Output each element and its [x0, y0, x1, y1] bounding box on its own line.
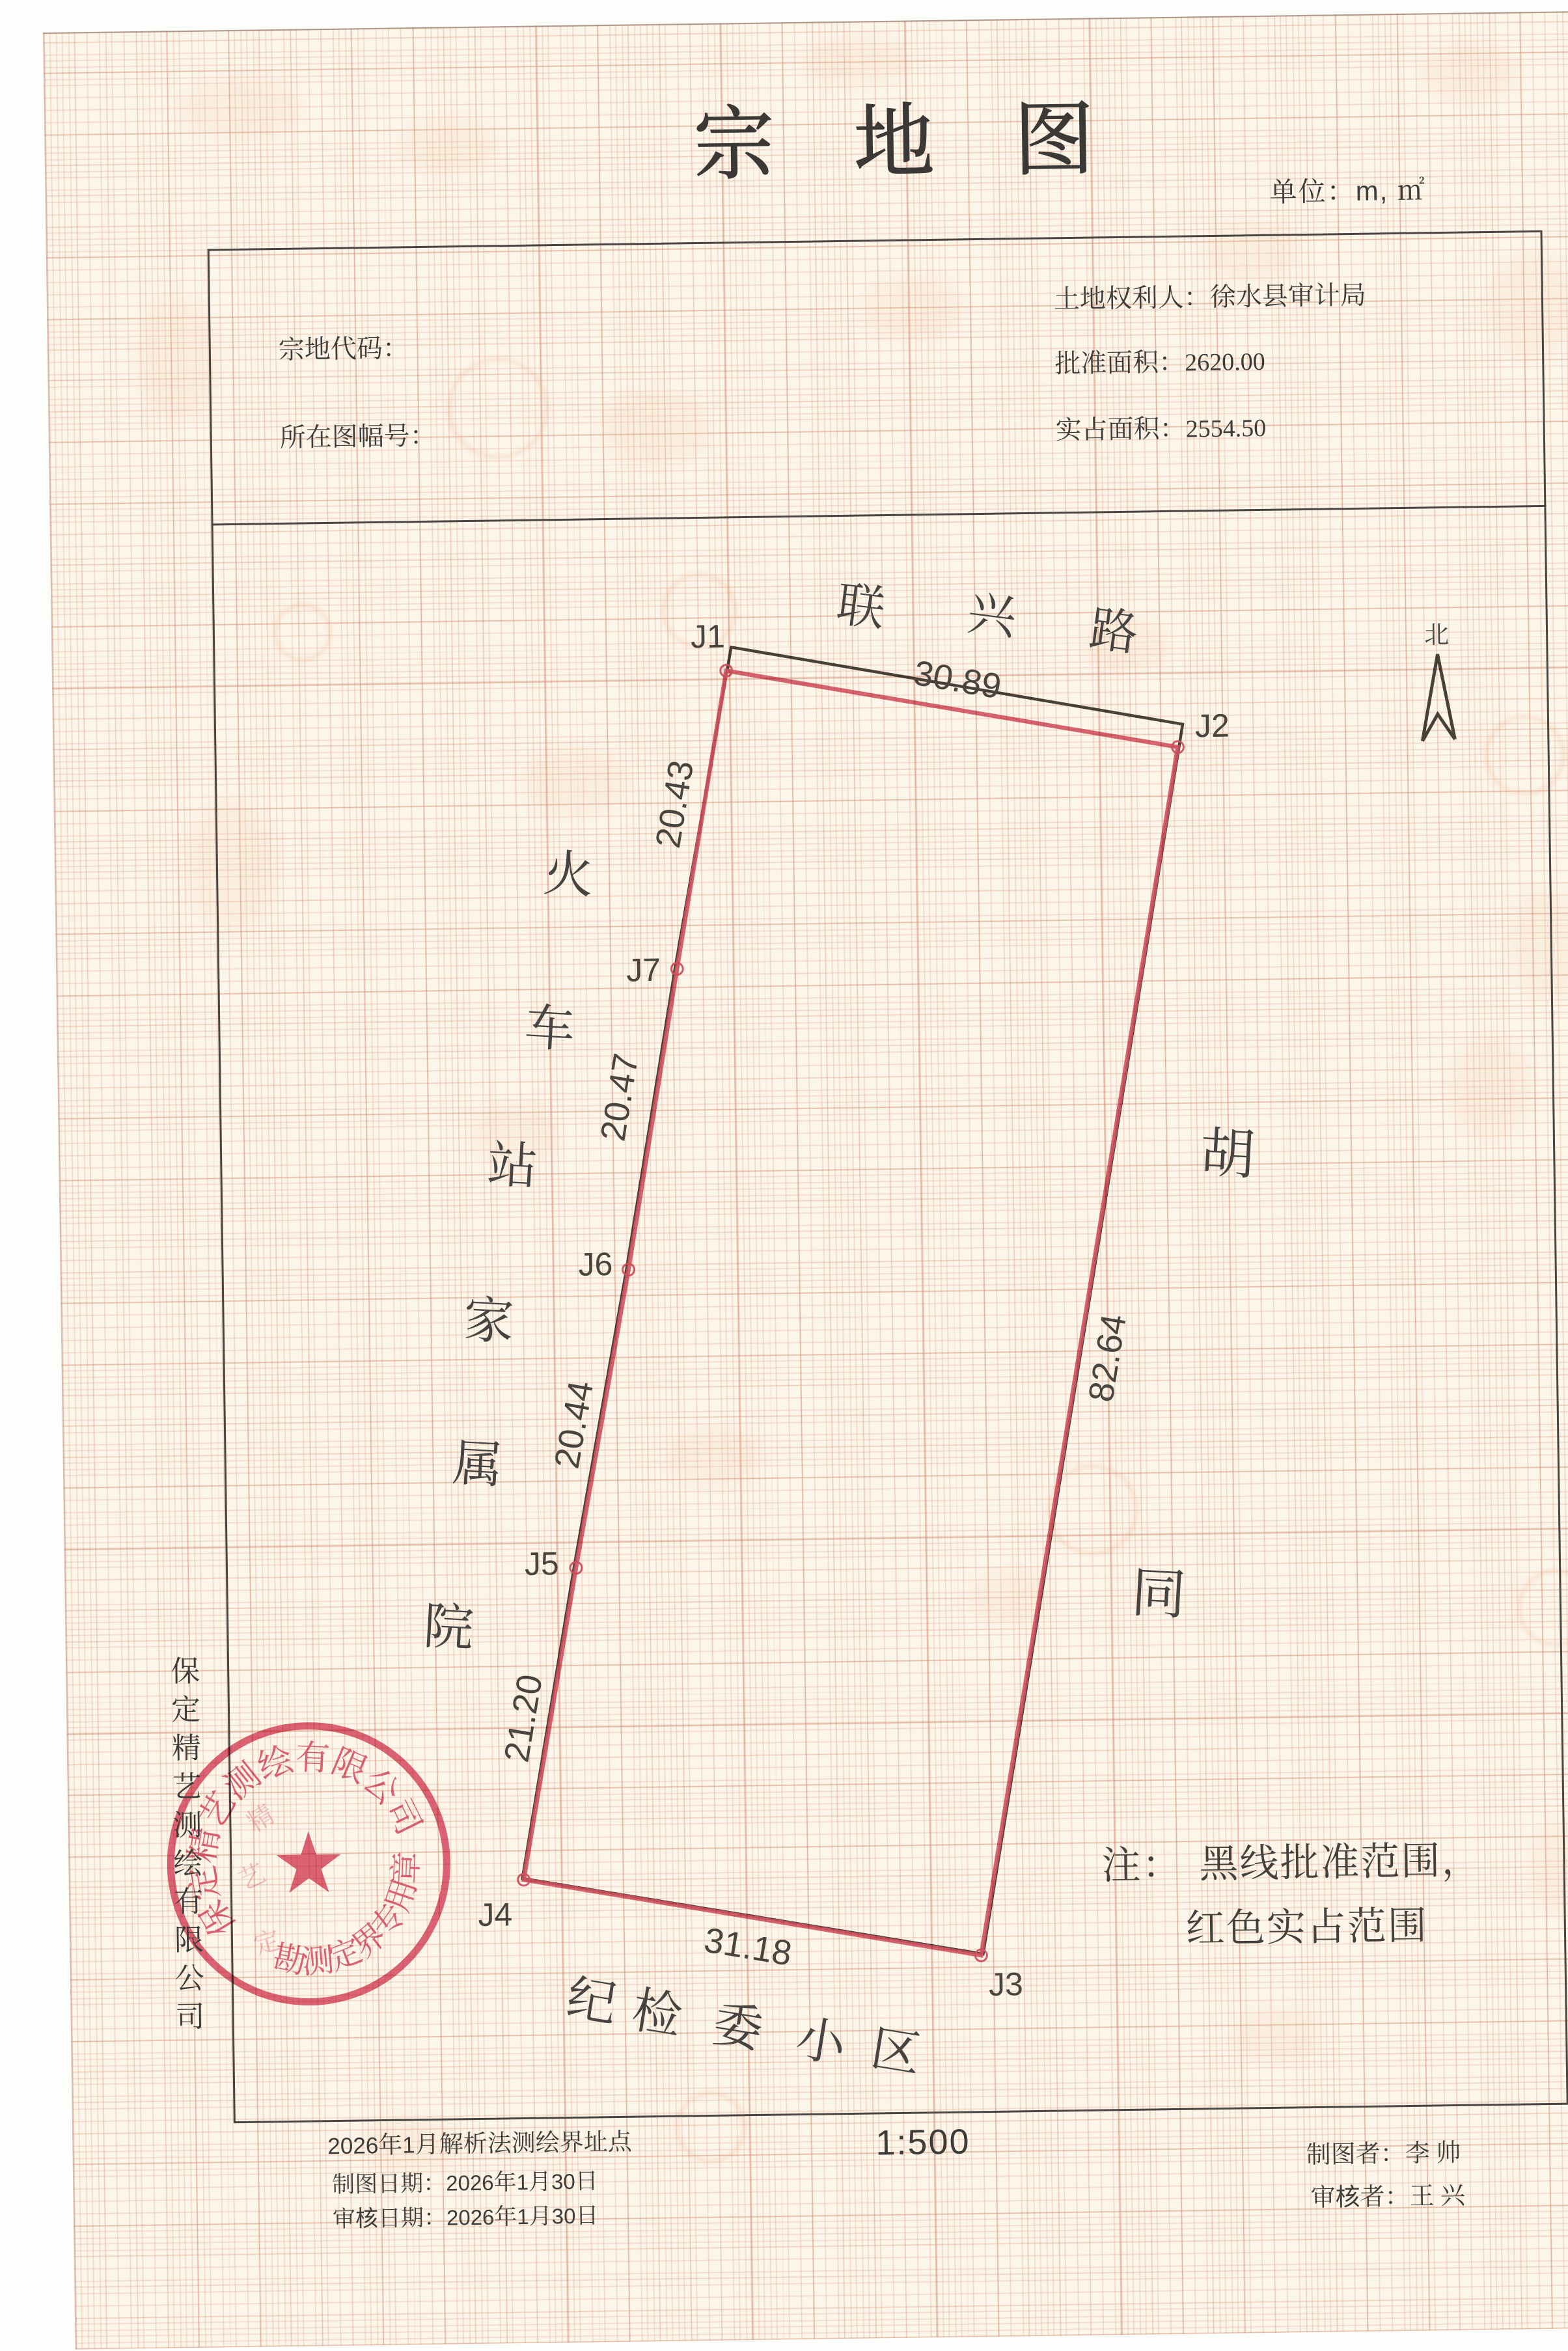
svg-text:章: 章 [379, 1850, 428, 1885]
svg-text:有: 有 [295, 1730, 331, 1781]
svg-text:艺: 艺 [232, 1852, 271, 1897]
svg-text:定: 定 [249, 1919, 284, 1962]
